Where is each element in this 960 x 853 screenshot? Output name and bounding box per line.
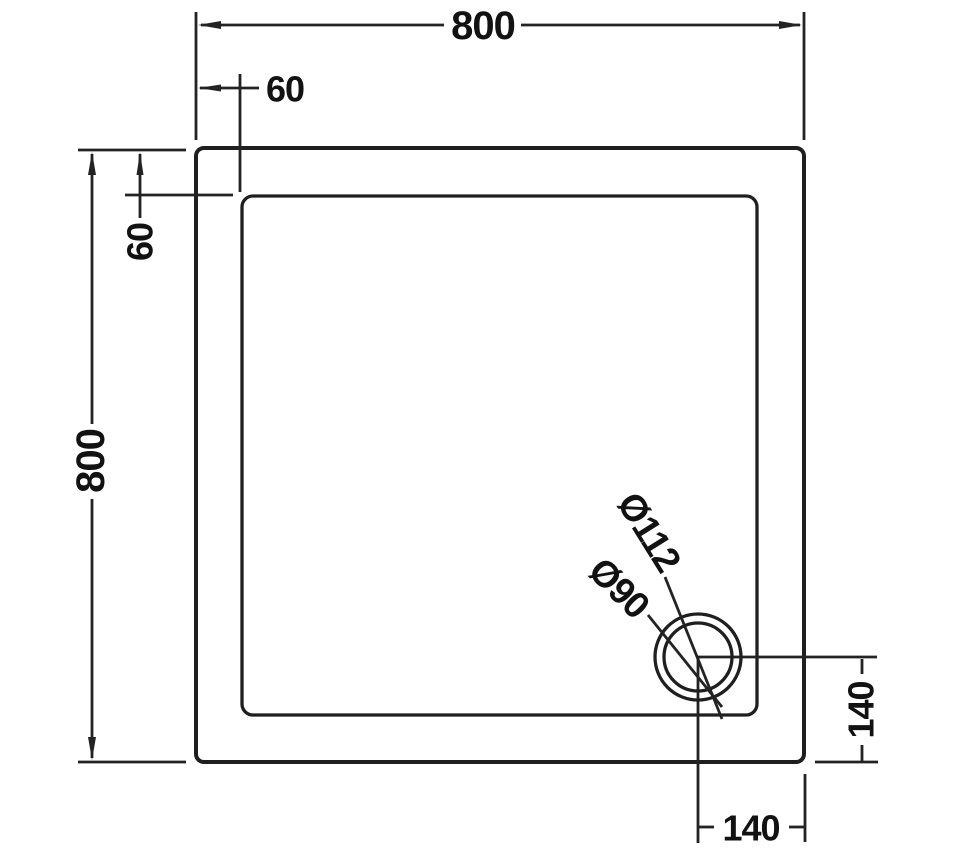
dimension-rim-inset-left: 60 — [120, 152, 234, 261]
drain-offset-bottom-label: 140 — [722, 808, 779, 849]
overall-height-label: 800 — [69, 429, 113, 493]
tray-inner-rim — [242, 196, 757, 715]
arrowhead-up-icon — [88, 152, 96, 175]
rim-inset-left-label: 60 — [120, 223, 161, 261]
drain-offset-right-label: 140 — [841, 681, 882, 738]
arrowhead-left-icon — [198, 21, 221, 29]
tray-outline — [196, 148, 804, 762]
tray-outer-edge — [196, 148, 804, 762]
arrowhead-up-icon — [137, 152, 144, 175]
drain-assembly: Ø112 Ø90 — [581, 485, 877, 843]
dimension-drain-offset-bottom: 140 — [699, 774, 805, 849]
technical-drawing-canvas: Ø112 Ø90 800 800 60 — [0, 0, 960, 853]
arrowhead-down-icon — [88, 737, 96, 760]
rim-inset-top-label: 60 — [266, 69, 304, 110]
arrowhead-right-icon — [779, 21, 802, 29]
dimension-drain-offset-right: 140 — [815, 659, 882, 762]
dimension-rim-inset-top: 60 — [198, 69, 304, 193]
arrowhead-left-icon — [198, 85, 221, 92]
shower-tray-drawing: Ø112 Ø90 800 800 60 — [0, 0, 960, 853]
overall-width-label: 800 — [451, 4, 515, 48]
